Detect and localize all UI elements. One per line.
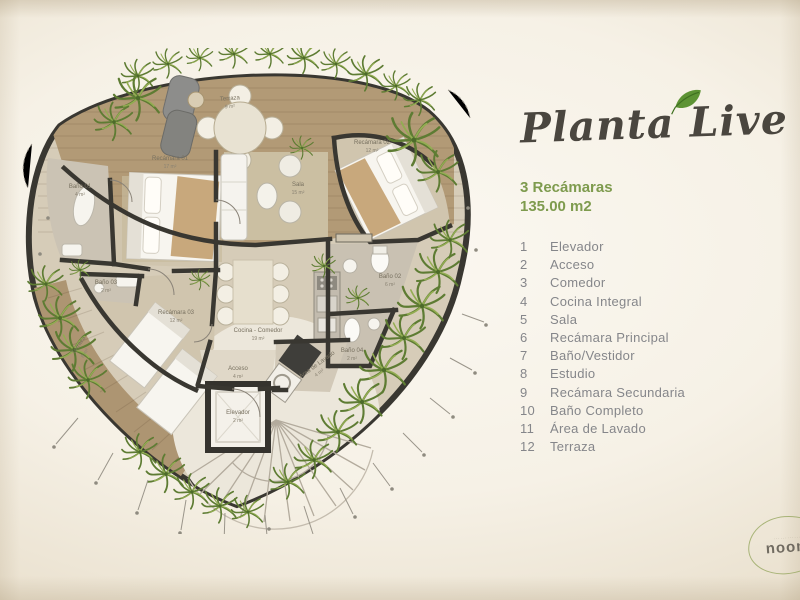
legend-item: 7Baño/Vestidor [520, 347, 780, 365]
label-bano1: Baño 01 [69, 184, 92, 190]
legend-item: 3Comedor [520, 274, 780, 292]
legend-num: 1 [520, 238, 550, 256]
label-bano4-area: 2 m² [347, 356, 357, 362]
sliding-door [336, 234, 372, 242]
label-recamara2-area: 12 m² [366, 148, 379, 154]
label-sala: Sala [292, 182, 305, 188]
legend-item: 10Baño Completo [520, 402, 780, 420]
floor-plan-drawing: Terraza 9 m² Terraza 8 m² Recámara 01 17… [18, 48, 492, 534]
legend-item: 2Acceso [520, 256, 780, 274]
page-title-text: Planta Live [519, 95, 788, 152]
noom-logo: ············ noom [746, 513, 800, 576]
label-bano4: Baño 04 [341, 348, 364, 354]
label-acceso: Acceso [228, 366, 248, 372]
label-bano3: Baño 03 [95, 280, 118, 286]
label-recamara1-area: 17 m² [164, 164, 177, 170]
label-bano3-area: 2 m² [101, 288, 111, 294]
legend-label: Estudio [550, 365, 780, 383]
legend-num: 2 [520, 256, 550, 274]
label-cocina: Cocina - Comedor [234, 328, 283, 334]
page-title: Planta Live [519, 95, 781, 152]
label-acceso-area: 4 m² [233, 374, 243, 380]
legend-num: 9 [520, 384, 550, 402]
legend-num: 12 [520, 438, 550, 456]
label-sala-area: 15 m² [292, 190, 305, 196]
label-recamara2: Recámara 02 [354, 140, 391, 146]
legend-label: Baño/Vestidor [550, 347, 780, 365]
legend-num: 8 [520, 365, 550, 383]
legend-label: Recámara Principal [550, 329, 780, 347]
legend-label: Comedor [550, 274, 780, 292]
legend-item: 6Recámara Principal [520, 329, 780, 347]
legend-item: 4Cocina Integral [520, 293, 780, 311]
label-recamara3-area: 12 m² [170, 318, 183, 324]
info-panel: Planta Live 3 Recámaras 135.00 m2 1Eleva… [520, 100, 780, 456]
legend-label: Cocina Integral [550, 293, 780, 311]
label-elevador-area: 2 m² [233, 418, 243, 424]
legend-item: 1Elevador [520, 238, 780, 256]
legend-label: Acceso [550, 256, 780, 274]
label-recamara1: Recámara 01 [152, 156, 189, 162]
label-terraza-top-area: 9 m² [225, 104, 236, 111]
legend-label: Elevador [550, 238, 780, 256]
label-elevador: Elevador [226, 410, 250, 416]
legend-num: 3 [520, 274, 550, 292]
legend-num: 7 [520, 347, 550, 365]
label-bano2-area: 6 m² [385, 282, 395, 288]
label-recamara3: Recámara 03 [158, 310, 195, 316]
label-bano1-area: 4 m² [75, 192, 85, 198]
legend-num: 11 [520, 420, 550, 438]
legend-num: 6 [520, 329, 550, 347]
legend-item: 5Sala [520, 311, 780, 329]
elevator [208, 384, 268, 450]
bed-recamara1 [127, 172, 222, 261]
legend-item: 12Terraza [520, 438, 780, 456]
brochure-page: Terraza 9 m² Terraza 8 m² Recámara 01 17… [0, 0, 800, 600]
logo-name: noom [765, 538, 800, 556]
legend-label: Área de Lavado [550, 420, 780, 438]
legend-num: 5 [520, 311, 550, 329]
sofa [221, 154, 247, 240]
deck-side-table [188, 92, 204, 108]
legend-item: 8Estudio [520, 365, 780, 383]
legend-item: 9Recámara Secundaria [520, 384, 780, 402]
legend-list: 1Elevador 2Acceso 3Comedor 4Cocina Integ… [520, 238, 780, 456]
legend-num: 4 [520, 293, 550, 311]
floor-plan: Terraza 9 m² Terraza 8 m² Recámara 01 17… [18, 48, 492, 534]
label-cocina-area: 19 m² [252, 336, 265, 342]
legend-label: Terraza [550, 438, 780, 456]
legend-label: Sala [550, 311, 780, 329]
label-bano2: Baño 02 [379, 274, 402, 280]
legend-label: Baño Completo [550, 402, 780, 420]
leaf-icon [669, 86, 704, 115]
legend-item: 11Área de Lavado [520, 420, 780, 438]
bedroom-count: 3 Recámaras [520, 178, 780, 197]
dining-set [217, 260, 289, 325]
plan-summary: 3 Recámaras 135.00 m2 [520, 178, 780, 216]
legend-num: 10 [520, 402, 550, 420]
legend-label: Recámara Secundaria [550, 384, 780, 402]
total-area: 135.00 m2 [520, 197, 780, 216]
